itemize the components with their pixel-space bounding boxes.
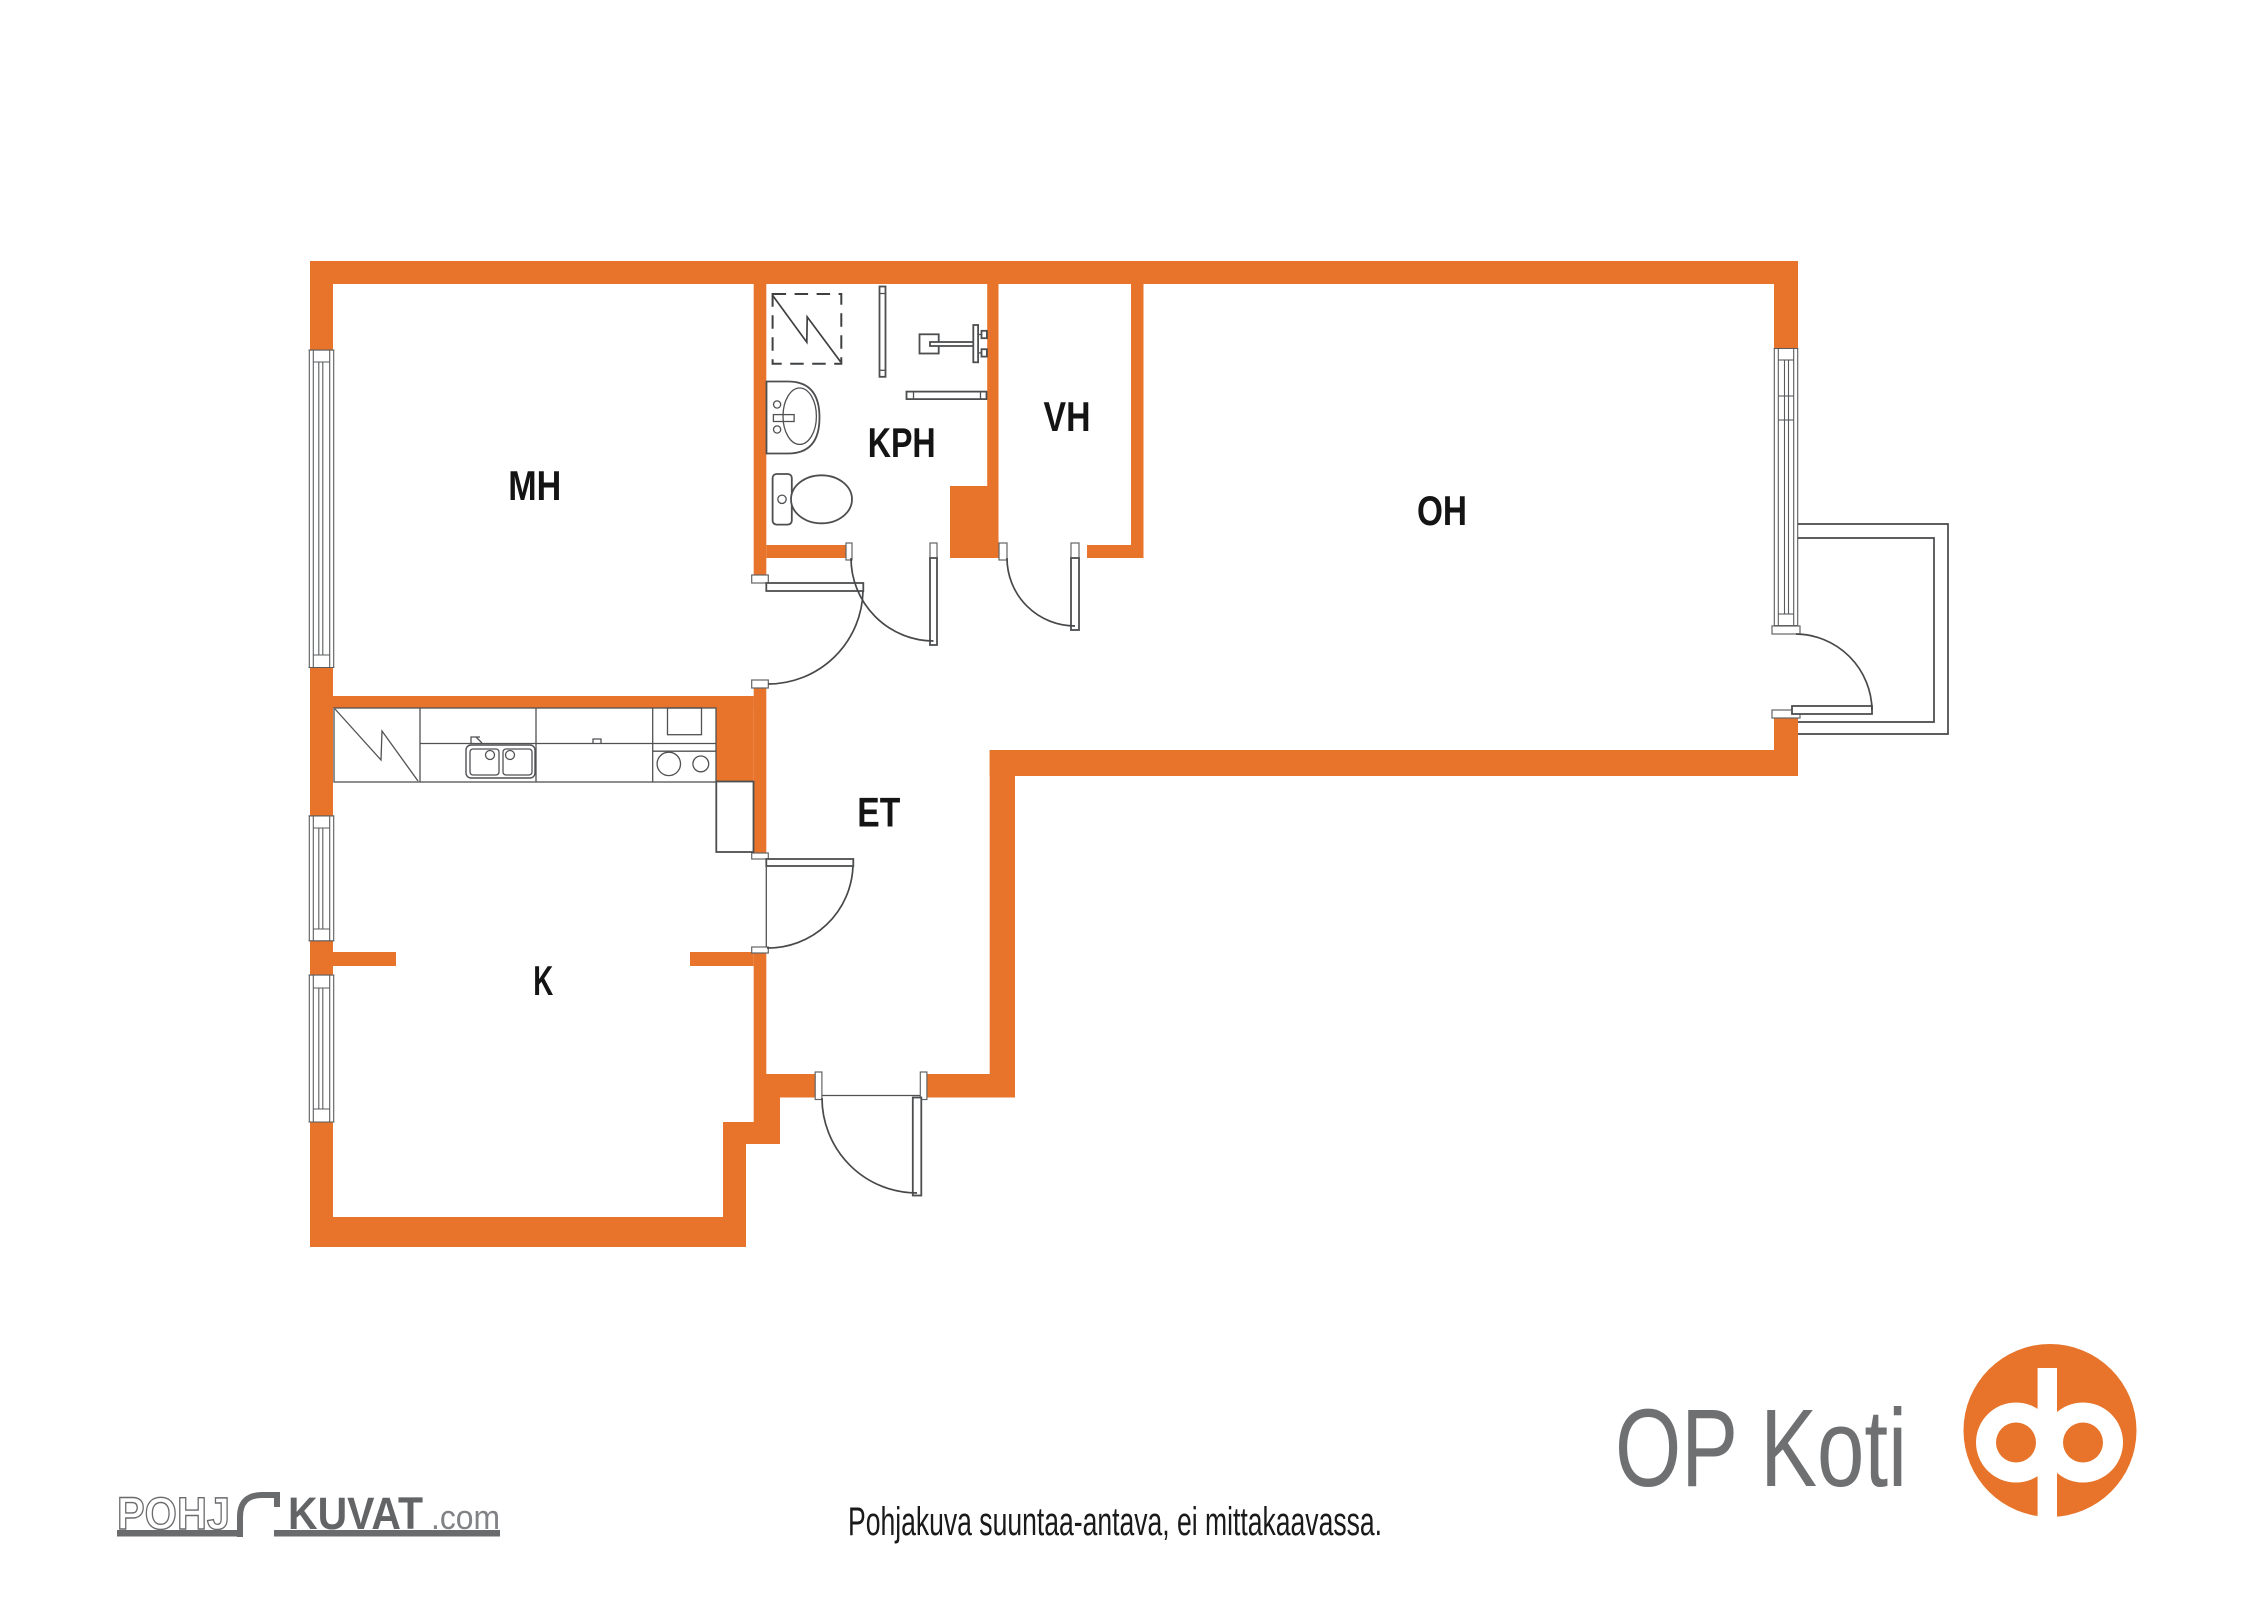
svg-text:ET: ET [857,789,900,836]
svg-text:Pohjakuva suuntaa-antava, ei m: Pohjakuva suuntaa-antava, ei mittakaavas… [848,1500,1382,1544]
svg-text:K: K [533,957,553,1004]
svg-text:KPH: KPH [868,419,936,466]
svg-text:OP Koti: OP Koti [1615,1387,1907,1510]
svg-text:MH: MH [508,462,561,509]
svg-text:VH: VH [1044,393,1091,440]
svg-text:OH: OH [1417,487,1467,534]
